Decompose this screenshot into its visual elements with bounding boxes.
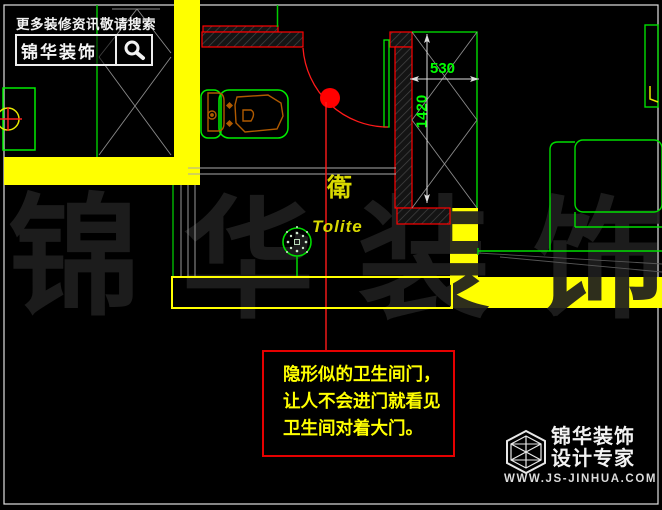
room-label: 衛 [327, 175, 352, 203]
door-swing-arc [303, 48, 388, 127]
search-icon [117, 39, 151, 61]
dimension-text-1420: 1420 [414, 90, 429, 134]
cad-floorplan-image: 锦 华 装 饰 [0, 0, 662, 510]
shower-drain-symbol [283, 226, 311, 277]
door-leaf [384, 40, 389, 127]
footer-brand-name: 锦华装饰 [551, 426, 635, 448]
annotation-line-3: 卫生间对着大门。 [283, 415, 453, 442]
side-table [645, 25, 658, 107]
wall-top-thick [202, 32, 303, 47]
annotation-line-1: 隐形似的卫生间门， [283, 361, 453, 388]
header-brand-label: 锦华装饰 [17, 38, 115, 63]
annotation-line-2: 让人不会进门就看见 [283, 388, 453, 415]
sofa [478, 140, 662, 255]
glass-partition [188, 168, 396, 174]
wall-top-thin [203, 26, 278, 32]
wall-right-vertical [395, 47, 412, 208]
header-tagline: 更多装修资讯敬请搜索 [16, 13, 166, 33]
footer-brand-block: 锦华装饰 设计专家 [551, 426, 635, 470]
ceiling-lamp-symbol [0, 88, 35, 150]
corridor-outline [172, 277, 452, 308]
footer-cube-logo-icon [504, 429, 548, 475]
doorway-lines [173, 185, 195, 277]
annotation-callout-box: 隐形似的卫生间门， 让人不会进门就看见 卫生间对着大门。 [262, 350, 455, 457]
footer-website: WWW.JS-JINHUA.COM [504, 473, 657, 485]
door-marker-dot [320, 88, 340, 108]
room-label-english: Tolite [312, 217, 363, 237]
footer-brand-subtitle: 设计专家 [551, 448, 635, 470]
toilet-fixture [201, 90, 288, 138]
dimension-text-530: 530 [430, 60, 455, 77]
wall-bottom-stub [397, 208, 450, 224]
floor-guide-lines [478, 253, 662, 272]
wall-right-top [390, 32, 412, 47]
header-brand-box: 锦华装饰 [15, 34, 153, 66]
